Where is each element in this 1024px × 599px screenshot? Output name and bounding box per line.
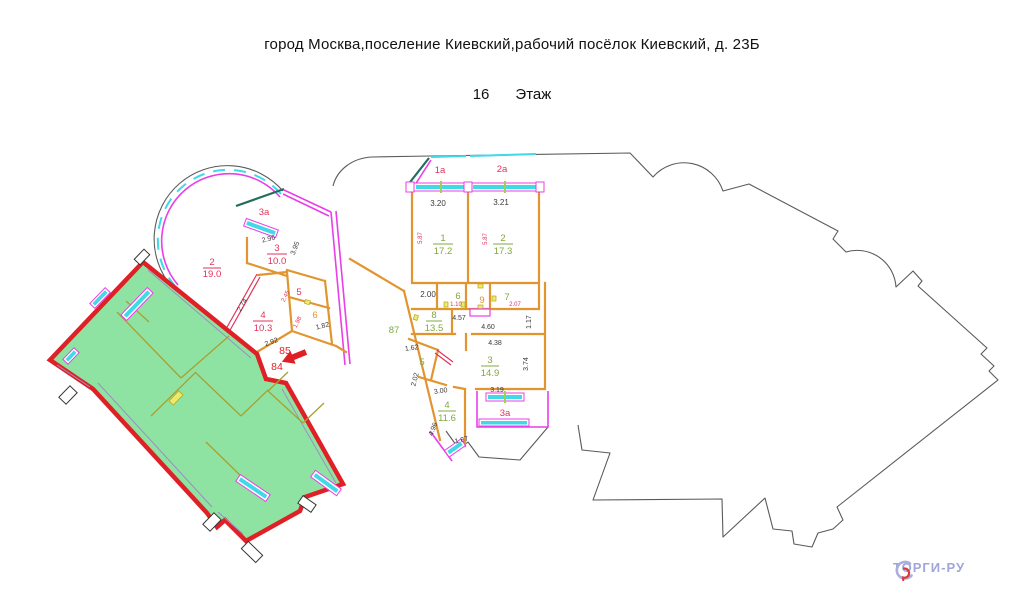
- dim-3-95: 3.95: [290, 241, 302, 256]
- building-outline: [333, 153, 998, 547]
- dim-1-82: 1.82: [315, 321, 330, 331]
- dim-1-10: 1.10: [450, 302, 462, 308]
- dim-2-02: 2.02: [410, 372, 420, 387]
- balcony-3a-bottom-window2-icon: [479, 419, 529, 426]
- room-left-5: 5: [296, 287, 301, 298]
- dim-3-19: 3.19: [490, 387, 504, 394]
- room-mid-3-area: 14.9: [481, 368, 500, 379]
- corridor-wall: [350, 259, 404, 291]
- hall-magenta-box: [470, 309, 490, 316]
- room-left-4-number: 4: [260, 310, 265, 321]
- room-mid-4-area: 11.6: [438, 413, 456, 424]
- dim-1-62: 1.62: [405, 344, 420, 353]
- room-mid-2-area: 17.3: [494, 246, 513, 257]
- top-window-line-1: [431, 156, 466, 157]
- room-left-2-area: 19.0: [203, 269, 222, 280]
- room-mid-8-number: 8: [431, 310, 436, 321]
- dim-5-87-left: 5.87: [418, 232, 424, 244]
- dim-4-38: 4.38: [488, 340, 502, 347]
- balcony-3a-wall-a: [284, 190, 331, 212]
- dim-1-98: 1.98: [293, 315, 304, 329]
- pillar-1: [464, 182, 472, 192]
- balcony-3a-wall-b: [283, 194, 329, 216]
- floor-plan-drawing: 3a 2 19.0 3 10.0 4 10.3 5 6 1a 2a 1 17.2…: [0, 0, 1024, 599]
- room-left-3-number: 3: [274, 243, 279, 254]
- room-mid-9: 9: [479, 295, 484, 306]
- dim-4-60: 4.60: [481, 324, 495, 331]
- dim-1-87: 1.87: [454, 435, 469, 445]
- room-left-6: 6: [312, 310, 317, 321]
- dim-3-00: 3.00: [434, 387, 449, 396]
- room-mid-3-number: 3: [487, 355, 492, 366]
- apartment-number-85: 85: [279, 345, 291, 357]
- label-balcony-2a: 2a: [497, 164, 508, 175]
- label-balcony-3a-bottom: 3a: [500, 408, 511, 419]
- room-mid-1-area: 17.2: [434, 246, 453, 257]
- pillar-0: [406, 182, 414, 192]
- room-mid-1-number: 1: [440, 233, 445, 244]
- watermark: ТОРГИ-РУ: [893, 560, 965, 575]
- room-mid-2-number: 2: [500, 233, 505, 244]
- label-balcony-3a-top: 3a: [259, 207, 270, 218]
- floor-plan-page: город Москва,поселение Киевский,рабочий …: [0, 0, 1024, 599]
- dim-2-92: 2.92: [264, 337, 279, 348]
- torgi-house-icon: [893, 560, 917, 584]
- dim-5-87-right: 5.87: [483, 233, 489, 245]
- top-window-line-2: [470, 154, 536, 156]
- dim-1-17: 1.17: [526, 315, 533, 329]
- room-mid-4-number: 4: [444, 400, 449, 411]
- room-mid-5: 5: [419, 357, 424, 368]
- dim-2-00: 2.00: [420, 290, 436, 299]
- dim-4-57: 4.57: [452, 315, 466, 322]
- label-corridor-87: 87: [389, 325, 400, 336]
- room-left-4-area: 10.3: [254, 323, 273, 334]
- dim-3-74: 3.74: [523, 357, 530, 371]
- room-left-3-area: 10.0: [268, 256, 287, 267]
- balcony-3a-top-edge: [236, 189, 284, 206]
- room-mid-6: 6: [455, 291, 460, 302]
- window-band-2a-icon: [471, 181, 538, 193]
- dim-3-21: 3.21: [493, 198, 509, 207]
- dim-2-07: 2.07: [509, 302, 521, 308]
- dim-3-20: 3.20: [430, 199, 446, 208]
- window-band-1a-icon: [414, 181, 466, 193]
- pillar-2: [536, 182, 544, 192]
- label-balcony-1a: 1a: [435, 165, 446, 176]
- apartment-number-84: 84: [271, 361, 283, 373]
- room-left-2-number: 2: [209, 257, 214, 268]
- room-mid-8-area: 13.5: [425, 323, 444, 334]
